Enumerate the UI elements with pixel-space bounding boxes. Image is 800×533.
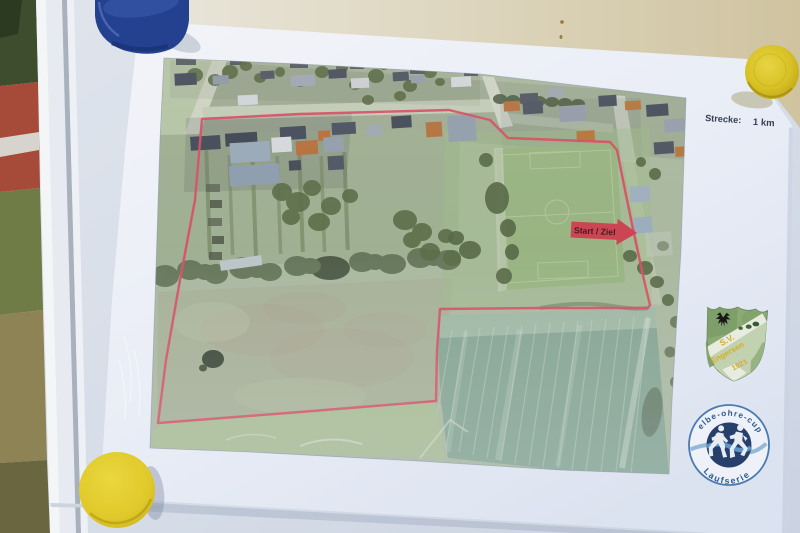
svg-text:1 km: 1 km (753, 117, 775, 129)
